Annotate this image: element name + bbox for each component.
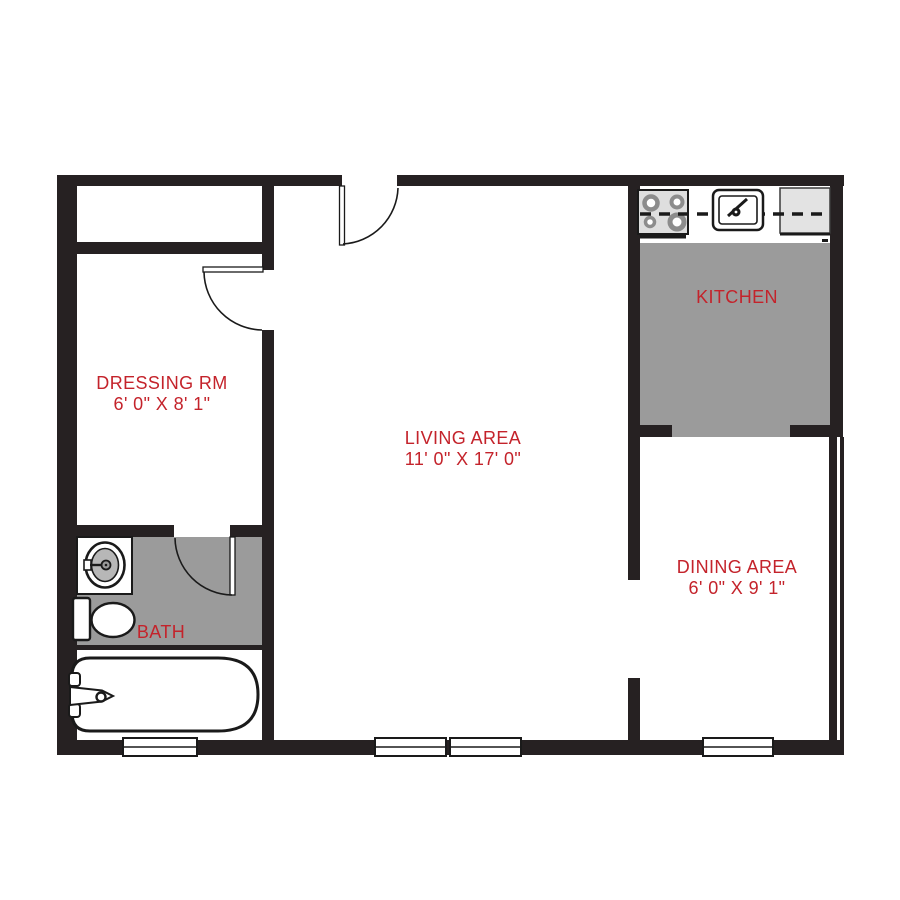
wall-segment	[840, 437, 844, 747]
living-area-label: LIVING AREA 11' 0" X 17' 0"	[405, 428, 521, 470]
room-name: DINING AREA	[677, 557, 797, 578]
window	[450, 738, 521, 756]
room-dimensions: 11' 0" X 17' 0"	[405, 449, 521, 470]
dressing-room-door	[203, 267, 263, 330]
wall-segment	[74, 645, 262, 650]
refrigerator-counter-icon	[780, 188, 830, 242]
room-name: LIVING AREA	[405, 428, 521, 449]
wall-segment	[628, 425, 672, 437]
wall-segment	[790, 425, 837, 437]
wall-segment	[230, 525, 262, 537]
wall-segment	[830, 175, 843, 437]
wall-segment	[57, 525, 174, 537]
room-name: BATH	[137, 622, 185, 643]
wall-segment	[57, 175, 342, 186]
room-name: KITCHEN	[696, 287, 778, 308]
kitchen-sink-icon	[713, 190, 763, 230]
room-dimensions: 6' 0" X 9' 1"	[677, 578, 797, 599]
wall-segment	[397, 175, 844, 186]
kitchen-floor	[640, 243, 830, 437]
bathroom-sink-icon	[77, 537, 132, 594]
wall-segment	[262, 330, 274, 740]
kitchen-label: KITCHEN	[696, 287, 778, 308]
room-name: DRESSING RM	[96, 373, 227, 394]
wall-segment	[628, 186, 640, 580]
bathtub-icon	[69, 658, 258, 731]
window	[703, 738, 773, 756]
wall-segment	[57, 242, 274, 254]
room-dimensions: 6' 0" X 8' 1"	[96, 394, 227, 415]
wall-segment	[628, 678, 640, 740]
wall-segment	[262, 186, 274, 270]
window	[123, 738, 197, 756]
bath-label: BATH	[137, 622, 185, 643]
floorplan-canvas: DRESSING RM 6' 0" X 8' 1" LIVING AREA 11…	[0, 0, 900, 900]
dressing-room-label: DRESSING RM 6' 0" X 8' 1"	[96, 373, 227, 415]
entry-door	[340, 186, 399, 245]
wall-segment	[829, 437, 837, 740]
window	[375, 738, 446, 756]
dining-area-label: DINING AREA 6' 0" X 9' 1"	[677, 557, 797, 599]
